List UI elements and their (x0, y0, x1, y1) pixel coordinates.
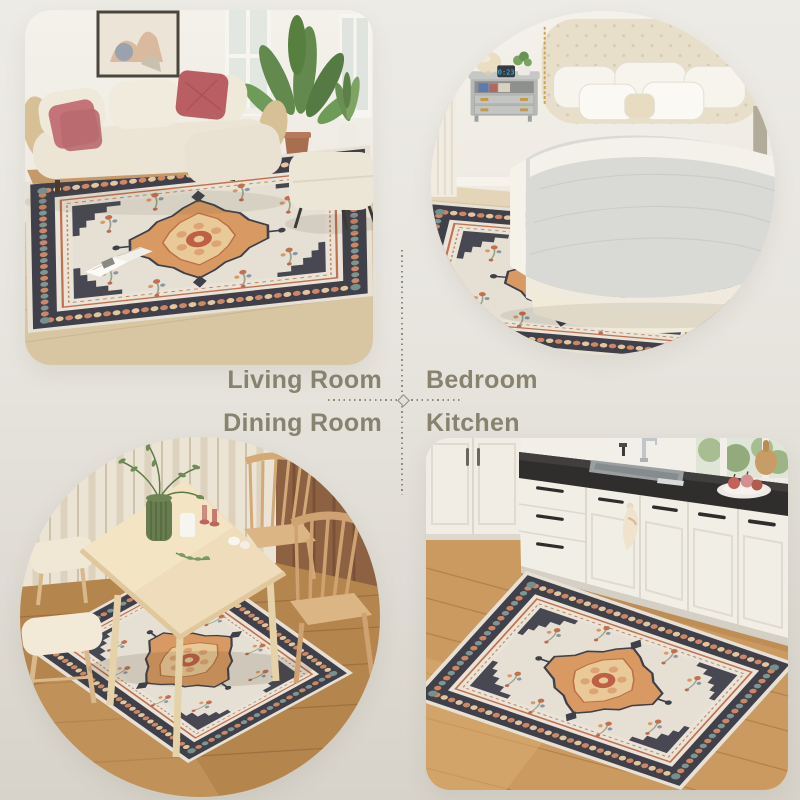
alarm-clock-time: 0:23 (498, 68, 515, 76)
bedroom-scene: 0:23 (431, 11, 775, 355)
ottoman (285, 152, 373, 234)
sheer-curtain (431, 68, 457, 197)
label-bedroom: Bedroom (426, 366, 538, 395)
photo-bedroom: 0:23 (431, 11, 775, 355)
label-dining-room: Dining Room (223, 409, 382, 438)
horizontal-dotted-divider (328, 399, 463, 401)
tall-cabinet (426, 438, 521, 540)
white-vase (180, 513, 195, 537)
alarm-clock: 0:23 (497, 65, 515, 77)
vertical-dotted-divider (401, 250, 403, 495)
rug-room-collage: 0:23 (0, 0, 800, 800)
shelf-books (478, 83, 488, 92)
photo-kitchen (426, 438, 788, 790)
maroon-pillow (175, 70, 230, 121)
photo-living-room (25, 10, 373, 365)
small-cup (228, 537, 240, 546)
living-room-scene (25, 10, 373, 365)
art-frame (98, 12, 178, 76)
divider-diamond-icon (397, 394, 410, 407)
photo-dining-room (20, 437, 380, 797)
kitchen-scene (426, 438, 788, 790)
right-curtain (757, 19, 775, 128)
soap-dispenser (622, 446, 625, 456)
dining-room-scene (20, 437, 380, 797)
green-vase (146, 494, 172, 541)
label-living-room: Living Room (227, 366, 382, 395)
label-kitchen: Kitchen (426, 409, 520, 438)
